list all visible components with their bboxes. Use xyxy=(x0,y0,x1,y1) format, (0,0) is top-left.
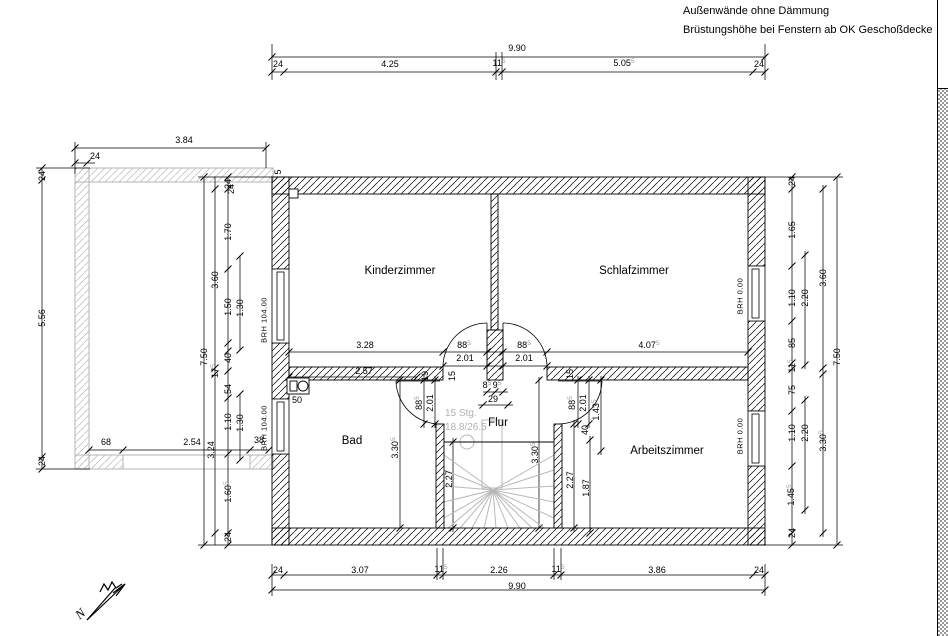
dimension-label: 1.10 xyxy=(787,289,797,307)
dimension-label: 1.30 xyxy=(235,299,245,317)
dimension-label: 2.27 xyxy=(444,470,454,488)
dimension-label: 24 xyxy=(223,532,233,542)
dimension-label: 24 xyxy=(787,528,797,538)
dimension-label: 3.60 xyxy=(210,271,220,289)
north-arrow-icon xyxy=(87,582,125,620)
dimension-superscript: 5 xyxy=(488,380,492,387)
dimension-superscript: 5 xyxy=(210,364,217,368)
dimension-label: 115 xyxy=(787,360,797,373)
washbasin-icon xyxy=(287,378,309,394)
dimension-label: 3.86 xyxy=(648,565,666,575)
dimension-label: 1.10 xyxy=(787,424,797,442)
dimension-label: 3.07 xyxy=(351,565,369,575)
dimension-label: 15 xyxy=(447,371,457,381)
dimension-label: 1.65 xyxy=(787,221,797,239)
dimension-superscript: 5 xyxy=(444,564,448,571)
dimension-label: 7.50 xyxy=(199,348,209,366)
dimension-label: 85 xyxy=(483,380,492,390)
dimension-label: 24 xyxy=(37,171,47,181)
dimension-label: 40 xyxy=(223,353,233,363)
dimension-label: 885 xyxy=(457,340,471,350)
dimension-label: 19 xyxy=(420,371,430,381)
room-label-bad: Bad xyxy=(342,435,362,447)
dimension-label: 3.60 xyxy=(818,269,828,287)
dimension-label: 54 xyxy=(223,384,233,394)
dimension-label: 115 xyxy=(552,564,565,574)
floor-plan-drawing xyxy=(0,0,948,636)
dimension-label: 24 xyxy=(787,176,797,186)
dimension-label: 4.25 xyxy=(381,59,399,69)
dimension-label: 68 xyxy=(101,437,111,447)
dimension-label: 1.70 xyxy=(223,223,233,241)
dimension-superscript: 5 xyxy=(527,340,531,347)
dimension-label: 3.305 xyxy=(390,437,400,458)
dimension-label: 24 xyxy=(754,565,764,575)
dimension-label: 29 xyxy=(488,394,498,404)
room-label-schlafzimmer: Schlafzimmer xyxy=(599,265,669,277)
dimension-label: 15 xyxy=(565,369,575,379)
dimension-superscript: 5 xyxy=(591,399,598,403)
dimension-label: 2.01 xyxy=(456,353,474,363)
dimension-label: 24 xyxy=(37,456,47,466)
dimension-label: 3.305 xyxy=(530,442,540,463)
canvas-edge-pattern xyxy=(938,88,948,636)
dimension-label: 7.50 xyxy=(832,348,842,366)
dimension-superscript: 5 xyxy=(502,58,506,65)
dimension-superscript: 5 xyxy=(631,58,635,65)
dimension-label: 2.20 xyxy=(800,424,810,442)
dimension-label: 75 xyxy=(787,385,797,395)
dimension-label: 885 xyxy=(567,396,577,410)
dimension-label: 5.56 xyxy=(37,309,47,327)
dimension-superscript: 5 xyxy=(498,380,502,387)
dimension-superscript: 5 xyxy=(656,340,660,347)
dimension-label: 5.055 xyxy=(613,58,634,68)
dimension-label: 1.30 xyxy=(235,414,245,432)
dimension-label: 9.90 xyxy=(508,581,526,591)
dimension-label: 40 xyxy=(580,425,590,435)
dimension-label: 885 xyxy=(517,340,531,350)
dimension-superscript: 5 xyxy=(467,340,471,347)
stair-ratio-label: 18.8/26.5 xyxy=(445,422,487,433)
dimension-label: 50 xyxy=(292,395,302,405)
dimension-superscript: 5 xyxy=(530,442,537,446)
dimension-label: 24 xyxy=(273,59,283,69)
room-label-flur: Flur xyxy=(488,417,508,429)
dimension-label: 4.075 xyxy=(638,340,659,350)
dimension-label: 115 xyxy=(435,564,448,574)
dimension-label: 2.57 xyxy=(355,366,373,376)
dimension-superscript: 5 xyxy=(223,481,230,485)
dimension-label: 5 xyxy=(273,169,283,174)
dimension-label: 95 xyxy=(493,380,502,390)
dimension-label: 3.84 xyxy=(175,135,193,145)
dimension-label: 1.605 xyxy=(223,481,233,502)
dimension-superscript: 5 xyxy=(787,360,794,364)
stair-count-label: 15 Stg. xyxy=(445,408,477,419)
dimension-label: 2.01 xyxy=(515,353,533,363)
corner-column-marker xyxy=(289,189,298,198)
dimension-label: 24 xyxy=(273,565,283,575)
dimension-label: 3.28 xyxy=(356,340,374,350)
dimension-label: 115 xyxy=(493,58,506,68)
room-label-kinderzimmer: Kinderzimmer xyxy=(365,265,436,277)
dimension-superscript: 5 xyxy=(561,564,565,571)
dimension-label: 2.01 xyxy=(578,394,588,412)
dimension-superscript: 5 xyxy=(818,430,825,434)
dimension-superscript: 5 xyxy=(414,396,421,400)
dimension-label: 2.27 xyxy=(565,471,575,489)
dimension-label: 885 xyxy=(414,396,424,410)
dimension-label: 24 xyxy=(223,179,233,189)
dimension-label: 2.20 xyxy=(800,289,810,307)
dimension-superscript: 5 xyxy=(390,437,397,441)
dimension-label: 1.435 xyxy=(591,399,601,420)
stairs-group xyxy=(444,420,554,528)
dimension-label: 1.87 xyxy=(581,479,591,497)
dimension-label: 2.54 xyxy=(183,437,201,447)
window-sill-height-label: BRH 0.00 xyxy=(736,278,745,315)
note-walls: Außenwände ohne Dämmung xyxy=(683,5,829,17)
dimension-label: 175 xyxy=(210,364,220,378)
dimension-label: 2.01 xyxy=(425,394,435,412)
dimension-label: 3.24 xyxy=(206,441,216,459)
canvas-edge-tick xyxy=(938,88,948,89)
room-label-arbeitszimmer: Arbeitszimmer xyxy=(630,445,703,457)
dimension-label: 1.455 xyxy=(786,484,796,505)
dimension-superscript: 5 xyxy=(786,484,793,488)
dimension-label: 2.26 xyxy=(490,565,508,575)
dimension-label: 9.90 xyxy=(508,43,526,53)
dimension-label: 3.305 xyxy=(818,430,828,451)
dimension-label: 24 xyxy=(90,151,100,161)
dimension-label: 1.50 xyxy=(223,298,233,316)
dimension-label: 24 xyxy=(754,59,764,69)
dimension-label: 1.10 xyxy=(223,413,233,431)
dimension-superscript: 5 xyxy=(567,396,574,400)
window-sill-height-label: BRH 104.00 xyxy=(260,405,269,451)
floor-plan-canvas[interactable]: Außenwände ohne Dämmung Brüstungshöhe be… xyxy=(0,0,948,636)
window-sill-height-label: BRH 0.00 xyxy=(736,418,745,455)
dimension-label: 85 xyxy=(787,338,797,348)
note-brh: Brüstungshöhe bei Fenstern ab OK Geschoß… xyxy=(683,24,932,36)
window-sill-height-label: BRH 104.00 xyxy=(260,297,269,343)
